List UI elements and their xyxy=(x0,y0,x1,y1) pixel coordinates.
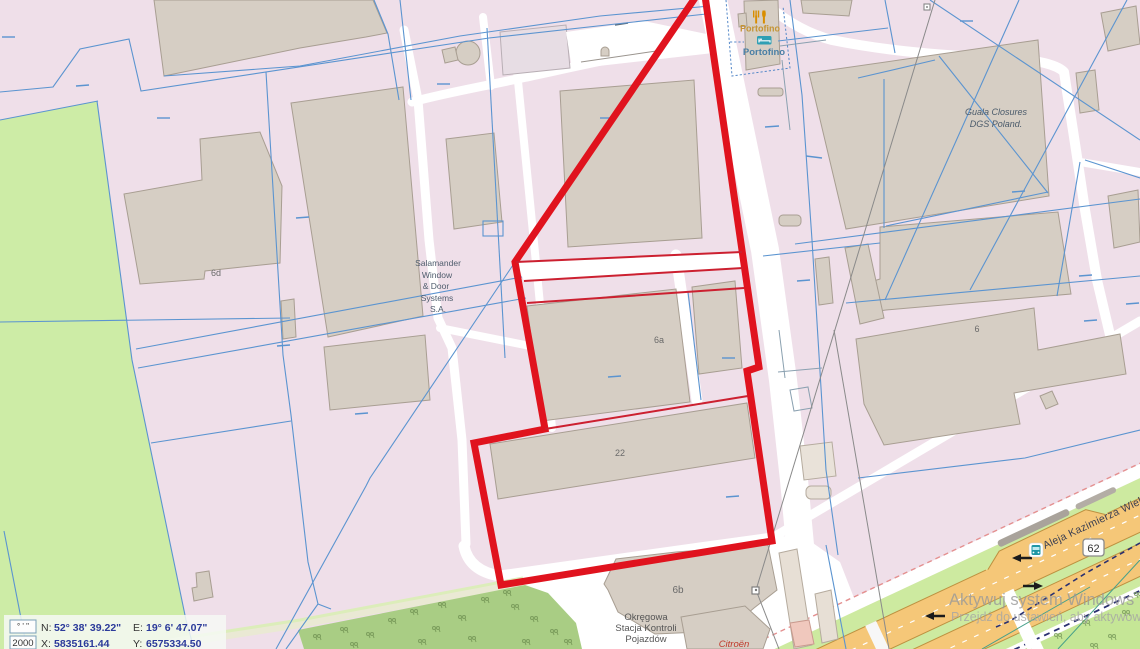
svg-text:Aktywuj system Windows: Aktywuj system Windows xyxy=(949,591,1134,609)
svg-text:S.A.: S.A. xyxy=(430,304,446,314)
svg-text:DGS Poland.: DGS Poland. xyxy=(970,119,1023,129)
svg-text:X:: X: xyxy=(41,638,51,649)
svg-text:& Door: & Door xyxy=(423,281,450,291)
svg-text:Window: Window xyxy=(422,270,453,280)
svg-text:22: 22 xyxy=(615,448,625,458)
svg-text:62: 62 xyxy=(1087,543,1099,555)
svg-text:5835161.44: 5835161.44 xyxy=(54,638,110,649)
svg-text:° ' ": ° ' " xyxy=(17,622,29,631)
svg-text:Przejdź do ustawień, aby aktyw: Przejdź do ustawień, aby aktywow xyxy=(951,610,1140,624)
svg-text:6: 6 xyxy=(974,324,979,334)
svg-text:Citroën: Citroën xyxy=(719,639,750,649)
svg-text:19° 6' 47.07": 19° 6' 47.07" xyxy=(146,622,207,634)
svg-text:Salamander: Salamander xyxy=(415,258,461,268)
svg-text:6b: 6b xyxy=(672,585,684,596)
svg-text:Portofino: Portofino xyxy=(740,24,780,34)
svg-text:Portofino: Portofino xyxy=(743,47,785,58)
svg-text:Pojazdów: Pojazdów xyxy=(625,634,666,645)
svg-text:Stacja Kontroli: Stacja Kontroli xyxy=(615,623,676,634)
svg-text:E:: E: xyxy=(133,622,143,634)
svg-text:2000: 2000 xyxy=(12,638,33,649)
svg-text:N:: N: xyxy=(41,622,52,634)
svg-text:6575334.50: 6575334.50 xyxy=(146,638,202,649)
svg-text:6a: 6a xyxy=(654,335,664,345)
svg-text:Okręgowa: Okręgowa xyxy=(624,612,668,623)
svg-text:Guala Closures: Guala Closures xyxy=(965,107,1028,117)
svg-text:52° 38' 39.22": 52° 38' 39.22" xyxy=(54,622,121,634)
svg-text:Y:: Y: xyxy=(133,638,142,649)
svg-text:Systems: Systems xyxy=(421,293,454,303)
svg-text:6d: 6d xyxy=(211,268,221,278)
